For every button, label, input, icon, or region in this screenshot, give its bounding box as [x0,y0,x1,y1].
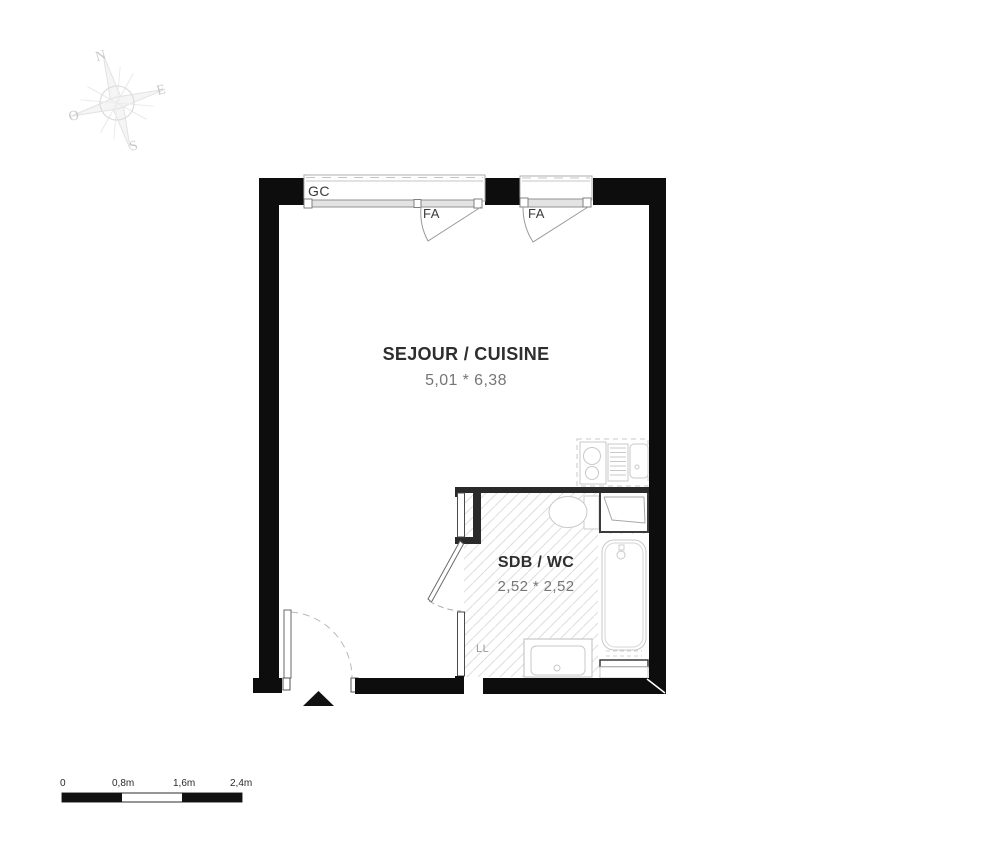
scale-bar [62,793,242,802]
scale-tick-3: 2,4m [230,778,252,789]
bathroom-label-block: SDB / WC 2,52 * 2,52 [446,554,626,595]
kitchen-sink [630,444,648,478]
partition-wall-lower [458,612,465,676]
window-1-frame [305,200,482,207]
floor-plan-drawing [0,0,1000,857]
scale-tick-2: 1,6m [173,778,195,789]
toilet [549,496,599,529]
cooktop-burner [584,448,601,465]
right-wall [649,178,666,694]
entrance-arrow [303,691,334,706]
kitchen-counter [577,439,648,486]
bathroom-top-wall [455,487,650,493]
bathroom-door-swing-arc [429,601,461,611]
room-dimensions-sdb: 2,52 * 2,52 [446,578,626,595]
cooktop [580,442,606,484]
guardrail-gc [304,175,485,201]
window-1-label: FA [423,206,440,221]
washbasin [600,492,648,532]
dish-drainer [608,444,628,481]
bathtub-ledge [600,667,648,678]
cooktop-burner [586,467,599,480]
washing-machine [524,639,592,677]
closet-door-leaf [458,493,465,537]
window-2-label: FA [528,206,545,221]
living-room-kitchen-label-block: SEJOUR / CUISINE 5,01 * 6,38 [334,344,598,390]
window-1 [304,175,485,241]
compass-rose [57,41,178,162]
washing-machine-label: LL [476,643,489,655]
entrance-door [283,610,358,706]
kitchen-counter-outline [577,439,648,486]
entrance-door-swing-arc [291,612,352,677]
scale-tick-0: 0 [60,778,66,789]
entrance-door-leaf [284,610,291,678]
bathtub-front-edge [600,660,648,667]
room-name-sdb: SDB / WC [446,554,626,572]
scale-tick-1: 0,8m [112,778,134,789]
room-dimensions-sejour: 5,01 * 6,38 [334,372,598,390]
left-wall [259,178,279,678]
room-name-sejour: SEJOUR / CUISINE [334,344,598,365]
floor-plan-page: N E S O GC FA FA SEJOUR / CUISINE 5,01 *… [0,0,1000,857]
guardrail-label: GC [308,183,330,199]
